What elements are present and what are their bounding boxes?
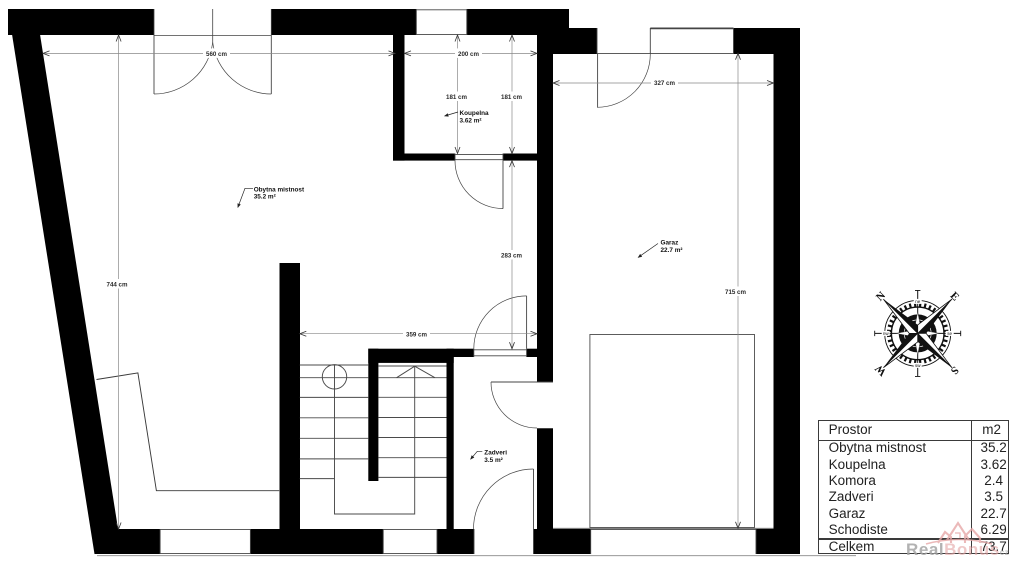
- svg-text:se: se: [947, 331, 952, 336]
- svg-text:3.62 m²: 3.62 m²: [460, 118, 482, 125]
- svg-text:283 cm: 283 cm: [501, 253, 522, 260]
- svg-text:359 cm: 359 cm: [406, 331, 427, 338]
- svg-text:3.5 m²: 3.5 m²: [484, 457, 502, 464]
- svg-text:327 cm: 327 cm: [654, 80, 675, 87]
- svg-text:22.7 m²: 22.7 m²: [661, 247, 683, 254]
- svg-text:nw: nw: [883, 331, 890, 336]
- svg-text:181 cm: 181 cm: [446, 94, 467, 101]
- svg-text:35.2 m²: 35.2 m²: [254, 193, 276, 200]
- svg-text:Garaz: Garaz: [661, 240, 679, 247]
- svg-text:744 cm: 744 cm: [107, 282, 128, 289]
- svg-text:715 cm: 715 cm: [725, 289, 746, 296]
- svg-text:Koupelna: Koupelna: [460, 110, 490, 117]
- svg-text:sw: sw: [915, 363, 921, 368]
- svg-text:200 cm: 200 cm: [458, 51, 479, 58]
- svg-text:560 cm: 560 cm: [206, 51, 227, 58]
- svg-text:181 cm: 181 cm: [501, 94, 522, 101]
- svg-text:ne: ne: [915, 299, 921, 304]
- svg-text:Zadveri: Zadveri: [484, 450, 507, 457]
